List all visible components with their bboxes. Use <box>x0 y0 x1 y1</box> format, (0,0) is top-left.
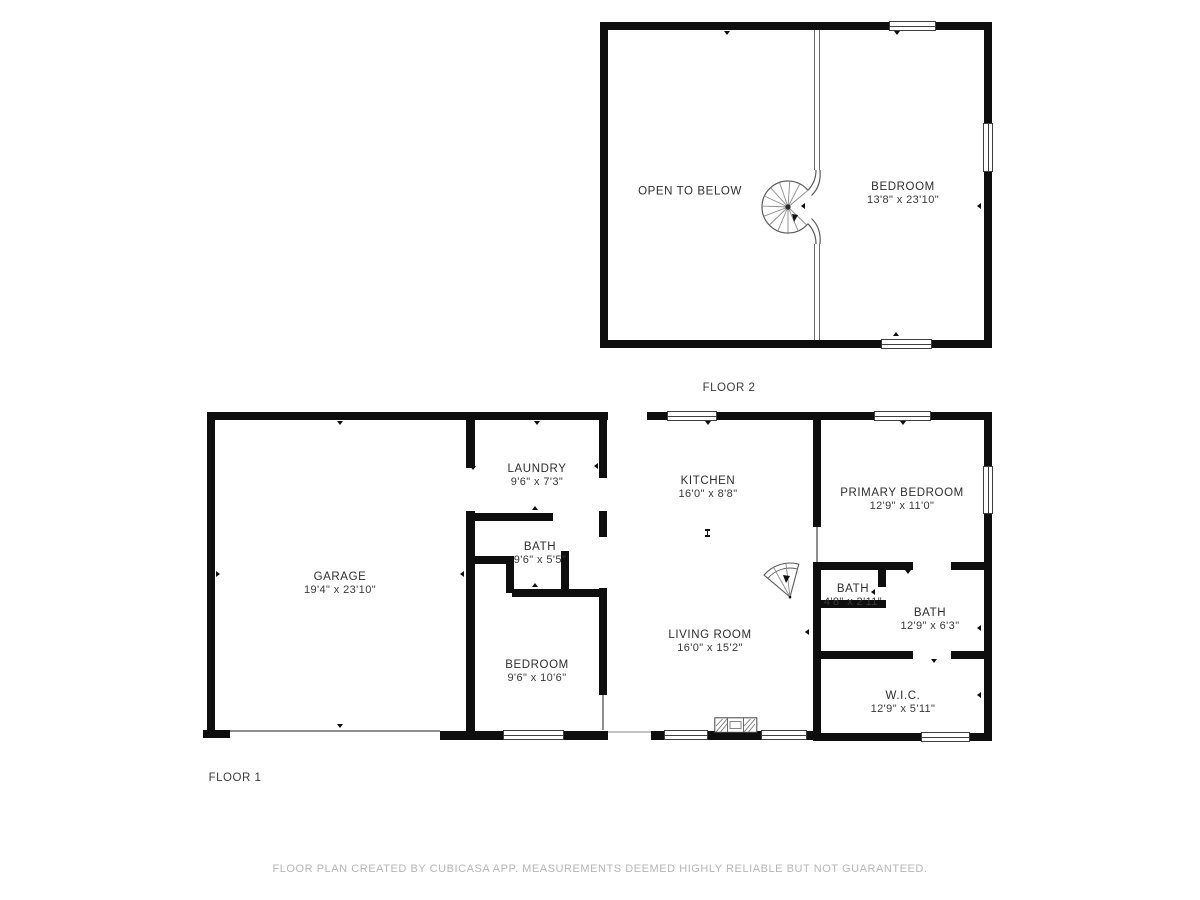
wall <box>512 589 607 597</box>
door-marker-icon <box>460 571 464 577</box>
room-label-primary-bedroom: PRIMARY BEDROOM 12'9" x 11'0" <box>840 487 964 513</box>
wall <box>600 22 608 348</box>
door-marker-icon <box>893 332 899 336</box>
room-name: W.I.C. <box>871 690 936 703</box>
wall <box>984 412 992 741</box>
wall <box>600 340 992 348</box>
window <box>983 123 993 172</box>
room-dims: 4'8" x 2'11" <box>824 596 882 609</box>
window <box>667 411 717 421</box>
door-marker-icon <box>805 629 809 635</box>
door-marker-icon <box>534 421 540 425</box>
window <box>889 21 936 31</box>
room-dims: 12'9" x 5'11" <box>871 703 936 716</box>
room-name: KITCHEN <box>678 475 737 488</box>
wall <box>466 412 475 468</box>
door-marker-icon <box>977 625 981 631</box>
room-label-bath-2: BATH 4'8" x 2'11" <box>824 583 882 609</box>
wall <box>984 22 992 348</box>
door-marker-icon <box>705 421 711 425</box>
window <box>761 730 807 740</box>
door-marker-icon <box>977 692 981 698</box>
room-dims: 16'0" x 8'8" <box>678 488 737 501</box>
door-marker-icon <box>594 463 598 469</box>
door-marker-icon <box>532 506 538 510</box>
room-dims: 13'8" x 23'10" <box>867 194 939 207</box>
wall <box>814 30 820 170</box>
opening-line <box>608 731 651 733</box>
window <box>503 730 564 740</box>
room-name: BATH <box>900 607 959 620</box>
room-label-bedroom-f2: BEDROOM 13'8" x 23'10" <box>867 181 939 207</box>
wall <box>466 513 553 521</box>
room-label-bath-1: BATH 9'6" x 5'5" <box>514 541 567 567</box>
wall <box>951 651 992 659</box>
spiral-staircase-icon <box>745 164 835 250</box>
door-marker-icon <box>337 421 343 425</box>
window <box>881 339 932 349</box>
window <box>874 411 931 421</box>
room-label-kitchen: KITCHEN 16'0" x 8'8" <box>678 475 737 501</box>
room-label-open-to-below: OPEN TO BELOW <box>638 186 742 199</box>
door-marker-icon <box>470 466 476 470</box>
door-marker-icon <box>894 31 900 35</box>
room-name: LIVING ROOM <box>668 629 751 642</box>
wall <box>813 412 821 527</box>
wall <box>951 562 992 570</box>
room-dims: 9'6" x 5'5" <box>514 554 567 567</box>
wall <box>599 511 607 537</box>
room-dims: 19'4" x 23'10" <box>304 584 376 597</box>
room-dims: 12'9" x 11'0" <box>840 500 964 513</box>
door-marker-icon <box>801 203 805 209</box>
garage-door-line <box>230 730 440 732</box>
door-marker-icon <box>900 421 906 425</box>
wall <box>599 412 607 478</box>
door-marker-icon <box>532 583 538 587</box>
room-dims: 16'0" x 15'2" <box>668 642 751 655</box>
wall <box>466 511 475 740</box>
floor-plan-canvas: OPEN TO BELOW BEDROOM 13'8" x 23'10" FLO… <box>0 0 1200 900</box>
room-name: PRIMARY BEDROOM <box>840 487 964 500</box>
room-label-bath-3: BATH 12'9" x 6'3" <box>900 607 959 633</box>
door-marker-icon <box>724 31 730 35</box>
room-label-wic: W.I.C. 12'9" x 5'11" <box>871 690 936 716</box>
wall <box>813 651 913 659</box>
floor1-label: FLOOR 1 <box>209 772 262 784</box>
room-name: OPEN TO BELOW <box>638 186 742 199</box>
room-name: BEDROOM <box>867 181 939 194</box>
section-marker-icon <box>705 529 710 537</box>
floor2-label: FLOOR 2 <box>703 382 756 394</box>
door-marker-icon <box>337 724 343 728</box>
window <box>921 732 970 742</box>
room-name: LAUNDRY <box>508 463 567 476</box>
door-marker-icon <box>931 659 937 663</box>
room-name: GARAGE <box>304 571 376 584</box>
room-label-living-room: LIVING ROOM 16'0" x 15'2" <box>668 629 751 655</box>
room-label-laundry: LAUNDRY 9'6" x 7'3" <box>508 463 567 489</box>
wall <box>207 412 608 420</box>
opening-line <box>816 527 818 562</box>
wall <box>814 244 820 340</box>
room-name: BEDROOM <box>505 659 569 672</box>
wall <box>203 730 230 738</box>
room-dims: 9'6" x 7'3" <box>508 476 567 489</box>
wall <box>813 562 913 570</box>
opening-line <box>602 695 604 730</box>
hearth-icon <box>714 717 758 734</box>
room-label-bedroom: BEDROOM 9'6" x 10'6" <box>505 659 569 685</box>
door-marker-icon <box>977 203 981 209</box>
room-dims: 9'6" x 10'6" <box>505 672 569 685</box>
door-marker-icon <box>905 570 911 574</box>
window <box>983 466 993 514</box>
room-name: BATH <box>824 583 882 596</box>
room-label-garage: GARAGE 19'4" x 23'10" <box>304 571 376 597</box>
room-name: BATH <box>514 541 567 554</box>
wall <box>207 412 215 738</box>
door-marker-icon <box>216 571 220 577</box>
wall <box>813 562 821 735</box>
wall <box>599 588 607 695</box>
footer-disclaimer: FLOOR PLAN CREATED BY CUBICASA APP. MEAS… <box>0 863 1200 875</box>
window <box>664 730 708 740</box>
stair-fan-icon <box>752 556 800 602</box>
room-dims: 12'9" x 6'3" <box>900 620 959 633</box>
